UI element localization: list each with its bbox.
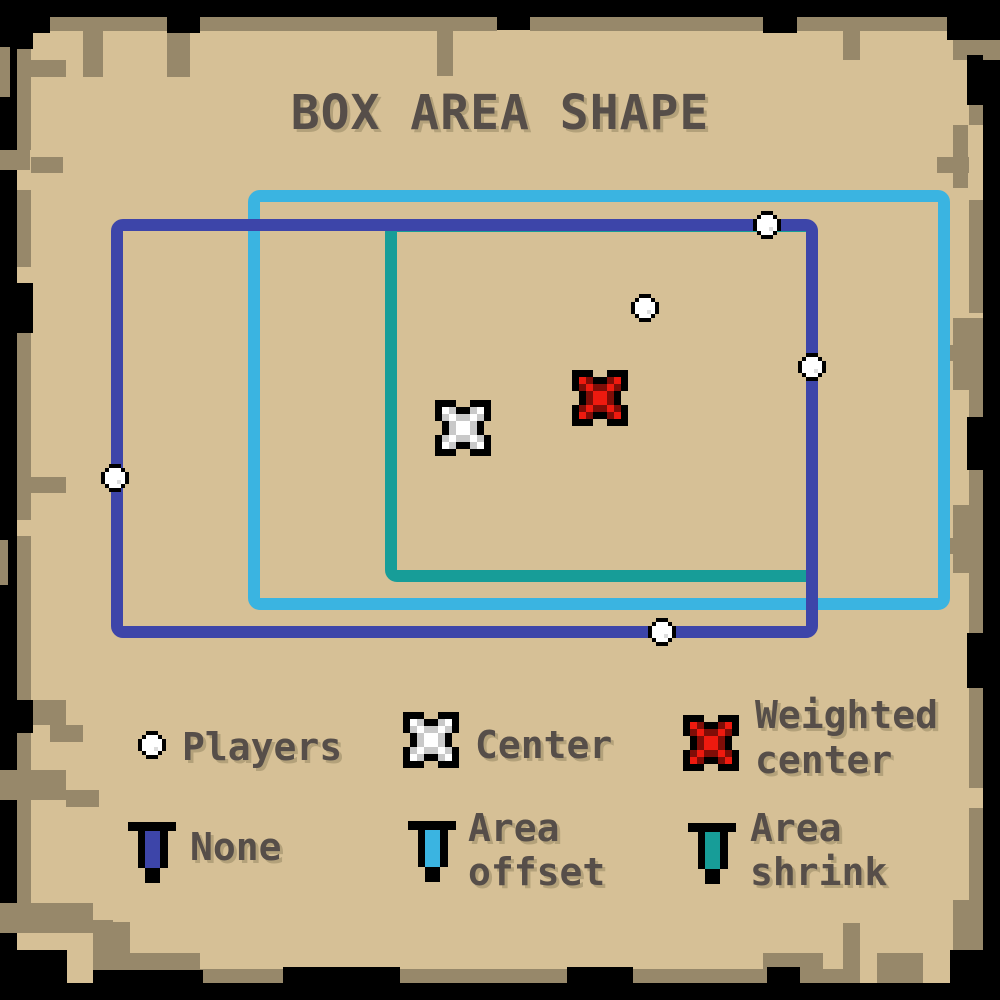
px — [484, 435, 491, 442]
legend-area-shrink-label-line1: Area — [750, 806, 842, 850]
legend-weighted-x-icon — [683, 715, 739, 771]
px — [586, 370, 593, 377]
player-marker — [798, 353, 826, 381]
px — [410, 712, 417, 719]
px — [683, 729, 690, 736]
px — [424, 719, 431, 726]
px — [614, 391, 621, 398]
px — [690, 743, 697, 750]
px — [579, 377, 586, 384]
px — [484, 407, 491, 414]
px — [477, 407, 484, 414]
px — [470, 442, 477, 449]
px — [438, 747, 445, 754]
px — [470, 428, 477, 435]
px — [452, 726, 459, 733]
px — [417, 719, 424, 726]
px — [477, 421, 484, 428]
px — [449, 414, 456, 421]
px — [725, 715, 732, 722]
px — [470, 435, 477, 442]
px — [410, 761, 417, 768]
px — [814, 377, 818, 381]
px — [732, 722, 739, 729]
map-canvas: BOX AREA SHAPE Players Center Weighted c… — [0, 0, 1000, 1000]
px — [607, 384, 614, 391]
px — [614, 377, 621, 384]
px — [424, 754, 431, 761]
px — [145, 831, 160, 868]
legend-none-label: None — [190, 825, 282, 869]
px — [690, 715, 697, 722]
px — [403, 761, 410, 768]
px — [435, 449, 442, 456]
px — [431, 726, 438, 733]
px — [711, 722, 718, 729]
px — [704, 750, 711, 757]
px — [600, 412, 607, 419]
px — [125, 480, 129, 484]
px — [417, 754, 424, 761]
px — [586, 391, 593, 398]
px — [704, 729, 711, 736]
px — [607, 412, 614, 419]
px — [777, 227, 781, 231]
legend-weighted-label-line1: Weighted — [755, 693, 938, 737]
px — [438, 726, 445, 733]
px — [477, 435, 484, 442]
px — [690, 722, 697, 729]
px — [424, 733, 431, 740]
px — [154, 755, 158, 759]
px — [463, 428, 470, 435]
px — [449, 400, 456, 407]
px — [452, 712, 459, 719]
px — [697, 757, 704, 764]
px — [718, 757, 725, 764]
px — [711, 750, 718, 757]
px — [456, 442, 463, 449]
px — [607, 391, 614, 398]
px — [593, 398, 600, 405]
px — [600, 391, 607, 398]
px — [442, 414, 449, 421]
px — [600, 398, 607, 405]
px — [818, 373, 822, 377]
px — [647, 318, 651, 322]
px — [705, 869, 720, 884]
px — [572, 419, 579, 426]
px — [403, 747, 410, 754]
px — [417, 747, 424, 754]
px — [449, 442, 456, 449]
px — [621, 419, 628, 426]
px — [410, 719, 417, 726]
px — [435, 442, 442, 449]
px — [445, 719, 452, 726]
px — [725, 764, 732, 771]
px — [711, 743, 718, 750]
px — [470, 421, 477, 428]
px — [593, 391, 600, 398]
px — [718, 729, 725, 736]
px — [477, 449, 484, 456]
px — [477, 400, 484, 407]
px — [732, 764, 739, 771]
px — [442, 435, 449, 442]
legend-center-label: Center — [475, 723, 612, 767]
px — [418, 830, 425, 867]
px — [698, 832, 705, 869]
px — [718, 736, 725, 743]
px — [607, 419, 614, 426]
px — [621, 370, 628, 377]
px — [456, 421, 463, 428]
px — [579, 405, 586, 412]
px — [456, 435, 463, 442]
px — [431, 754, 438, 761]
legend-none-banner-icon — [128, 822, 176, 883]
px — [403, 726, 410, 733]
px — [683, 757, 690, 764]
px — [456, 414, 463, 421]
px — [117, 488, 121, 492]
px — [463, 414, 470, 421]
px — [586, 412, 593, 419]
px — [600, 377, 607, 384]
px — [449, 428, 456, 435]
legend-area-shrink-label-line2: shrink — [750, 850, 887, 894]
px — [614, 384, 621, 391]
px — [438, 719, 445, 726]
px — [607, 405, 614, 412]
px — [417, 761, 424, 768]
px — [732, 729, 739, 736]
px — [417, 726, 424, 733]
px — [614, 405, 621, 412]
px — [593, 384, 600, 391]
legend-area-offset-banner-icon — [408, 821, 456, 882]
px — [705, 832, 720, 869]
px — [438, 761, 445, 768]
px — [477, 414, 484, 421]
px — [442, 400, 449, 407]
px — [572, 384, 579, 391]
px — [410, 733, 417, 740]
px — [445, 726, 452, 733]
px — [435, 400, 442, 407]
px — [704, 736, 711, 743]
px — [690, 729, 697, 736]
px — [442, 407, 449, 414]
px — [424, 747, 431, 754]
px — [572, 370, 579, 377]
px — [586, 419, 593, 426]
px — [586, 398, 593, 405]
px — [463, 421, 470, 428]
px — [607, 370, 614, 377]
weighted-center-x-icon — [572, 370, 628, 426]
px — [403, 754, 410, 761]
player-marker — [631, 294, 659, 322]
px — [711, 736, 718, 743]
px — [586, 384, 593, 391]
px — [668, 638, 672, 642]
px — [424, 740, 431, 747]
px — [410, 726, 417, 733]
px — [732, 757, 739, 764]
px — [697, 743, 704, 750]
px — [614, 398, 621, 405]
px — [621, 384, 628, 391]
px — [688, 823, 736, 832]
px — [452, 761, 459, 768]
px — [445, 740, 452, 747]
px — [442, 428, 449, 435]
px — [607, 398, 614, 405]
px — [579, 370, 586, 377]
px — [651, 314, 655, 318]
px — [449, 407, 456, 414]
px — [463, 435, 470, 442]
px — [431, 719, 438, 726]
px — [431, 747, 438, 754]
px — [593, 405, 600, 412]
px — [484, 414, 491, 421]
px — [732, 715, 739, 722]
px — [128, 822, 176, 831]
px — [683, 764, 690, 771]
px — [470, 449, 477, 456]
legend-players-label: Players — [182, 725, 342, 769]
legend-area-offset-label-line2: offset — [468, 850, 605, 894]
px — [438, 712, 445, 719]
legend-weighted-label-line2: center — [755, 738, 892, 782]
px — [586, 377, 593, 384]
px — [470, 414, 477, 421]
px — [697, 715, 704, 722]
px — [445, 733, 452, 740]
px — [408, 821, 456, 830]
px — [822, 369, 826, 373]
px — [664, 642, 668, 646]
px — [600, 384, 607, 391]
px — [445, 754, 452, 761]
px — [614, 370, 621, 377]
px — [438, 740, 445, 747]
px — [690, 757, 697, 764]
px — [579, 391, 586, 398]
px — [449, 449, 456, 456]
px — [586, 405, 593, 412]
px — [672, 634, 676, 638]
player-marker — [101, 464, 129, 492]
px — [718, 722, 725, 729]
px — [690, 736, 697, 743]
px — [621, 405, 628, 412]
px — [470, 400, 477, 407]
px — [725, 757, 732, 764]
px — [725, 750, 732, 757]
px — [600, 405, 607, 412]
px — [435, 414, 442, 421]
px — [452, 747, 459, 754]
px — [445, 761, 452, 768]
px — [614, 412, 621, 419]
px — [410, 740, 417, 747]
center-x-icon — [435, 400, 491, 456]
px — [655, 310, 659, 314]
px — [572, 377, 579, 384]
px — [456, 428, 463, 435]
px — [121, 484, 125, 488]
px — [440, 830, 448, 867]
px — [579, 412, 586, 419]
px — [704, 722, 711, 729]
px — [572, 405, 579, 412]
px — [145, 868, 160, 883]
px — [449, 421, 456, 428]
px — [593, 377, 600, 384]
px — [158, 751, 162, 755]
px — [579, 398, 586, 405]
px — [718, 750, 725, 757]
px — [477, 442, 484, 449]
player-marker — [648, 618, 676, 646]
px — [572, 412, 579, 419]
px — [697, 736, 704, 743]
px — [718, 743, 725, 750]
px — [431, 740, 438, 747]
px — [452, 754, 459, 761]
px — [697, 750, 704, 757]
px — [442, 442, 449, 449]
px — [438, 754, 445, 761]
px — [417, 740, 424, 747]
px — [697, 764, 704, 771]
px — [697, 722, 704, 729]
px — [435, 435, 442, 442]
legend-player-dot-icon — [138, 731, 166, 759]
px — [484, 449, 491, 456]
px — [435, 407, 442, 414]
px — [769, 235, 773, 239]
px — [425, 867, 440, 882]
px — [725, 729, 732, 736]
px — [607, 377, 614, 384]
px — [425, 830, 440, 867]
px — [725, 722, 732, 729]
px — [773, 231, 777, 235]
px — [424, 726, 431, 733]
px — [410, 747, 417, 754]
px — [621, 377, 628, 384]
px — [438, 733, 445, 740]
px — [579, 384, 586, 391]
px — [442, 421, 449, 428]
px — [138, 831, 145, 868]
px — [704, 757, 711, 764]
px — [449, 435, 456, 442]
px — [621, 412, 628, 419]
px — [593, 412, 600, 419]
legend-center-x-icon — [403, 712, 459, 768]
px — [704, 743, 711, 750]
px — [711, 729, 718, 736]
px — [718, 764, 725, 771]
px — [683, 722, 690, 729]
px — [725, 736, 732, 743]
px — [579, 419, 586, 426]
px — [697, 729, 704, 736]
px — [732, 750, 739, 757]
px — [445, 712, 452, 719]
legend-area-shrink-banner-icon — [688, 823, 736, 884]
px — [690, 764, 697, 771]
px — [718, 715, 725, 722]
px — [725, 743, 732, 750]
px — [445, 747, 452, 754]
px — [162, 747, 166, 751]
legend-area-offset-label-line1: Area — [468, 806, 560, 850]
px — [463, 407, 470, 414]
px — [431, 733, 438, 740]
player-marker — [753, 211, 781, 239]
px — [463, 442, 470, 449]
px — [410, 754, 417, 761]
px — [417, 733, 424, 740]
px — [683, 750, 690, 757]
px — [403, 719, 410, 726]
px — [484, 400, 491, 407]
px — [690, 750, 697, 757]
px — [711, 757, 718, 764]
page-title: BOX AREA SHAPE — [0, 87, 1000, 139]
px — [477, 428, 484, 435]
px — [683, 715, 690, 722]
px — [442, 449, 449, 456]
px — [720, 832, 728, 869]
px — [470, 407, 477, 414]
px — [417, 712, 424, 719]
px — [484, 442, 491, 449]
px — [452, 719, 459, 726]
px — [403, 712, 410, 719]
px — [614, 419, 621, 426]
px — [160, 831, 168, 868]
px — [456, 407, 463, 414]
